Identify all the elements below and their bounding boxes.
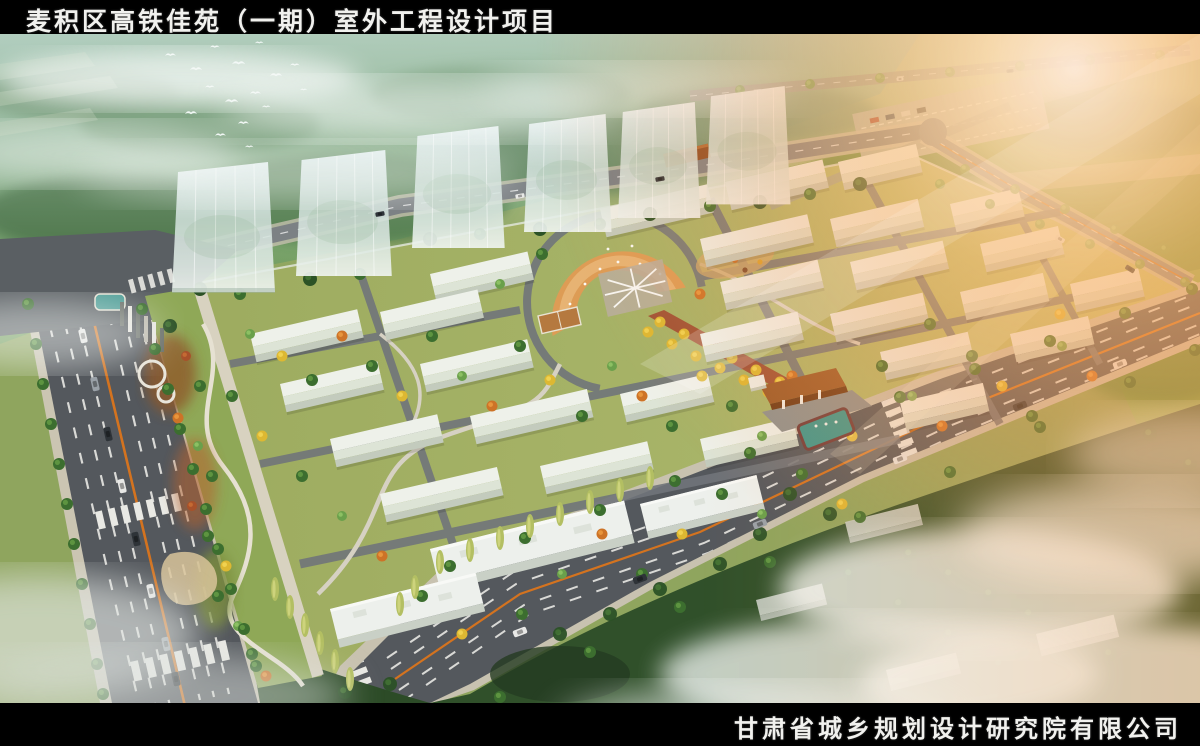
project-title: 麦积区高铁佳苑（一期）室外工程设计项目 [26,2,558,38]
aerial-rendering [0,34,1200,703]
credit-bar: 甘肃省城乡规划设计研究院有限公司 [0,703,1200,746]
title-bar: 麦积区高铁佳苑（一期）室外工程设计项目 [0,0,1200,34]
design-institute-name: 甘肃省城乡规划设计研究院有限公司 [734,709,1182,744]
sun-glare [0,34,1200,703]
presentation-board: 麦积区高铁佳苑（一期）室外工程设计项目 [0,0,1200,746]
